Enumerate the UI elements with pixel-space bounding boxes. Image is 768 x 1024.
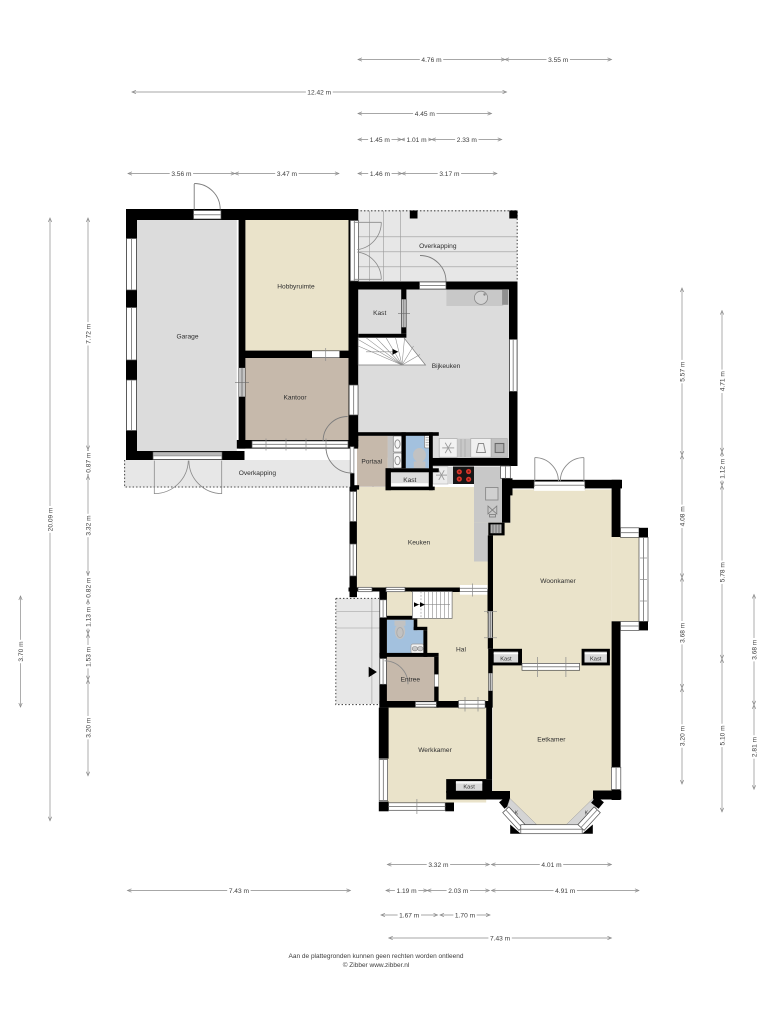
svg-text:2.03 m: 2.03 m bbox=[448, 888, 469, 895]
svg-text:7.43 m: 7.43 m bbox=[490, 935, 511, 942]
svg-text:Portaal: Portaal bbox=[361, 458, 382, 465]
svg-text:1.67 m: 1.67 m bbox=[399, 912, 420, 919]
svg-text:4.01 m: 4.01 m bbox=[541, 862, 562, 869]
svg-text:1.01 m: 1.01 m bbox=[407, 137, 428, 144]
svg-text:Overkapping: Overkapping bbox=[239, 470, 277, 477]
svg-text:5.57 m: 5.57 m bbox=[679, 361, 686, 382]
svg-text:3.17 m: 3.17 m bbox=[439, 171, 460, 178]
svg-text:Aan de plattegronden kunnen ge: Aan de plattegronden kunnen geen rechten… bbox=[289, 953, 464, 960]
svg-text:20.09 m: 20.09 m bbox=[47, 507, 54, 531]
svg-text:Keuken: Keuken bbox=[408, 540, 431, 547]
svg-text:2.81 m: 2.81 m bbox=[751, 736, 758, 757]
svg-text:7.72 m: 7.72 m bbox=[85, 323, 92, 344]
svg-text:Kast: Kast bbox=[373, 310, 386, 317]
svg-text:4.91 m: 4.91 m bbox=[555, 888, 576, 895]
svg-text:0.87 m: 0.87 m bbox=[85, 452, 92, 473]
svg-text:0.82 m: 0.82 m bbox=[85, 577, 92, 598]
svg-text:3.68 m: 3.68 m bbox=[679, 622, 686, 643]
svg-text:4.71 m: 4.71 m bbox=[719, 371, 726, 392]
svg-text:3.32 m: 3.32 m bbox=[428, 862, 449, 869]
svg-text:Kast: Kast bbox=[590, 657, 602, 663]
svg-text:Entree: Entree bbox=[401, 677, 421, 684]
svg-text:© Zibber www.zibber.nl: © Zibber www.zibber.nl bbox=[343, 961, 410, 969]
svg-text:Kast: Kast bbox=[463, 785, 475, 791]
svg-text:1.70 m: 1.70 m bbox=[455, 912, 476, 919]
svg-text:1.19 m: 1.19 m bbox=[397, 888, 418, 895]
svg-text:Werkkamer: Werkkamer bbox=[418, 747, 452, 754]
svg-text:Kantoor: Kantoor bbox=[283, 395, 307, 402]
svg-text:5.78 m: 5.78 m bbox=[719, 562, 726, 583]
svg-text:3.55 m: 3.55 m bbox=[548, 57, 569, 64]
svg-text:5.10 m: 5.10 m bbox=[719, 725, 726, 746]
svg-text:4.08 m: 4.08 m bbox=[679, 506, 686, 527]
svg-text:Kast: Kast bbox=[500, 657, 512, 663]
svg-text:1.13 m: 1.13 m bbox=[85, 606, 92, 627]
svg-text:3.56 m: 3.56 m bbox=[171, 171, 192, 178]
svg-text:4.45 m: 4.45 m bbox=[415, 111, 436, 118]
svg-text:1.12 m: 1.12 m bbox=[719, 458, 726, 479]
svg-text:3.20 m: 3.20 m bbox=[679, 725, 686, 746]
svg-text:2.33 m: 2.33 m bbox=[457, 137, 478, 144]
svg-text:3.32 m: 3.32 m bbox=[85, 515, 92, 536]
svg-text:3.20 m: 3.20 m bbox=[85, 717, 92, 738]
svg-text:4.76 m: 4.76 m bbox=[421, 57, 442, 64]
svg-text:3.70 m: 3.70 m bbox=[18, 641, 25, 662]
svg-text:1.45 m: 1.45 m bbox=[370, 137, 391, 144]
svg-text:Woonkamer: Woonkamer bbox=[540, 578, 576, 585]
svg-text:Garage: Garage bbox=[177, 334, 199, 341]
svg-text:12.42 m: 12.42 m bbox=[307, 89, 331, 96]
svg-text:3.47 m: 3.47 m bbox=[277, 171, 298, 178]
svg-text:Kast: Kast bbox=[403, 477, 416, 484]
svg-text:7.43 m: 7.43 m bbox=[229, 888, 250, 895]
svg-text:Overkapping: Overkapping bbox=[419, 243, 457, 250]
svg-text:Bijkeuken: Bijkeuken bbox=[432, 363, 461, 370]
svg-text:3.68 m: 3.68 m bbox=[751, 639, 758, 660]
svg-text:Hal: Hal bbox=[456, 646, 466, 653]
svg-text:1.53 m: 1.53 m bbox=[85, 646, 92, 667]
svg-text:Eetkamer: Eetkamer bbox=[537, 736, 566, 743]
svg-text:Hobbyruimte: Hobbyruimte bbox=[277, 284, 315, 291]
svg-text:1.46 m: 1.46 m bbox=[370, 171, 391, 178]
